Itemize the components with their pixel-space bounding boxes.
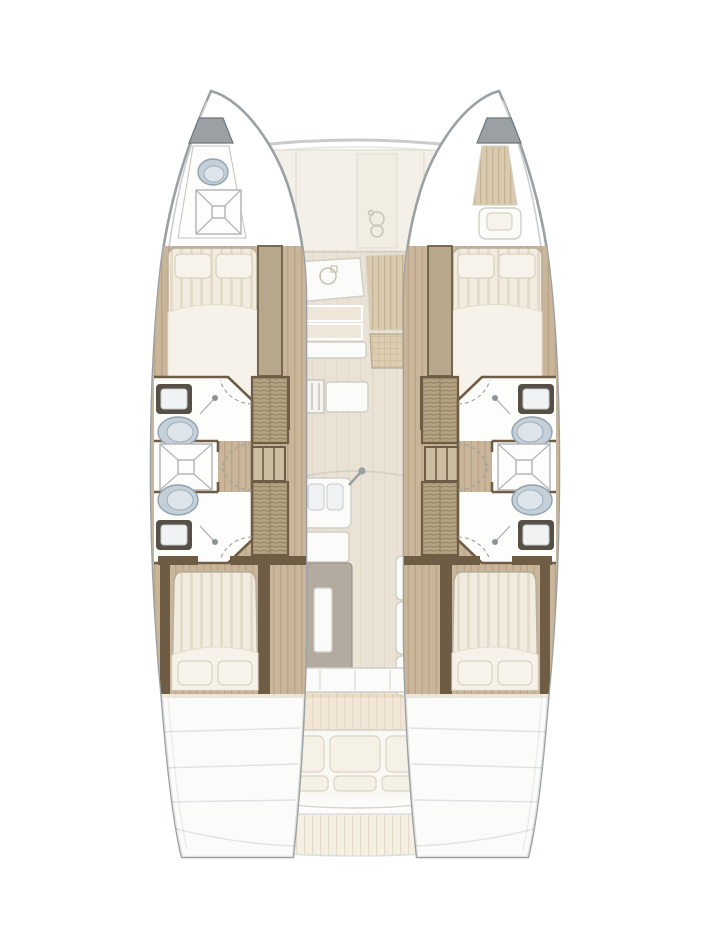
galley-counter-aft [326,382,368,412]
yacht-floor-plan: Catamaran accommodation and deck floor p… [0,0,710,947]
floor-plan-canvas: Catamaran accommodation and deck floor p… [0,0,710,947]
saloon-table-leaf [314,588,332,652]
port-bow-toilet-seat [204,166,224,182]
sofa-back-cushion-center [330,736,380,772]
island-basin-left [308,484,324,510]
island-faucet-head [358,467,365,474]
island-basin-right [327,484,343,510]
port-bow-shower-drain [212,206,225,218]
starboard-bow-pillow [487,213,512,230]
sofa-seat-cushion-center [334,776,376,791]
starboard-hull-mirrored [402,91,560,860]
foredeck-hatch-panel [357,154,397,248]
